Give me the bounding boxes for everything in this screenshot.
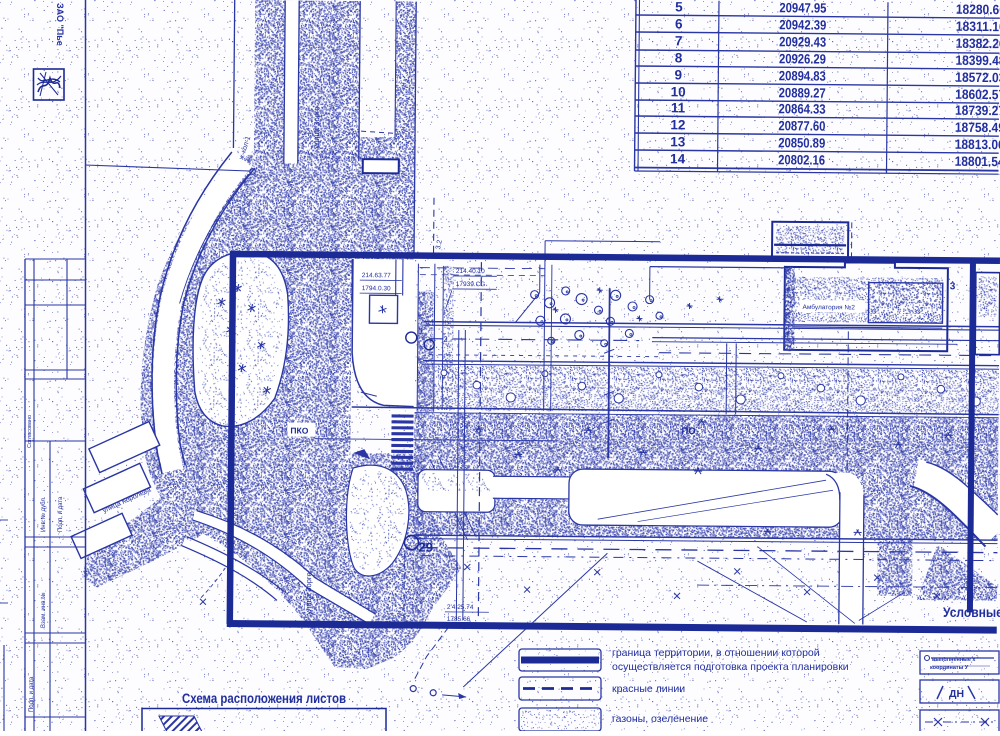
svg-text:20889.27: 20889.27 <box>779 85 826 100</box>
svg-text:Подп. и дата: Подп. и дата <box>29 676 35 712</box>
svg-text:1: 1 <box>419 327 424 336</box>
svg-text:3: 3 <box>950 281 956 292</box>
svg-text:7: 7 <box>675 33 683 48</box>
svg-text:214.63.77: 214.63.77 <box>362 272 391 279</box>
svg-text:Условные обозначения: Условные обозначения <box>943 605 1000 620</box>
svg-text:20894.83: 20894.83 <box>779 68 827 83</box>
svg-text:20947.95: 20947.95 <box>779 0 827 15</box>
svg-text:улица Зорге: улица Зорге <box>304 572 313 614</box>
svg-text:газоны, озеленение: газоны, озеленение <box>612 713 708 725</box>
svg-text:20802.16: 20802.16 <box>778 152 826 167</box>
svg-text:Инв.№ дубл.: Инв.№ дубл. <box>40 496 47 532</box>
svg-text:18382.26: 18382.26 <box>956 36 1000 51</box>
svg-text:20850.89: 20850.89 <box>778 135 825 150</box>
svg-text:18602.57: 18602.57 <box>955 87 1000 102</box>
svg-text:6: 6 <box>675 16 683 31</box>
svg-text:18813.06: 18813.06 <box>955 137 1000 152</box>
svg-text:2: 2 <box>443 335 448 344</box>
svg-text:18311.16: 18311.16 <box>956 19 1000 34</box>
svg-text:граница территории, в отношени: граница территории, в отношении которой <box>612 647 820 659</box>
svg-text:18399.48: 18399.48 <box>955 53 1000 68</box>
svg-text:Схема расположения листов: Схема расположения листов <box>182 691 346 706</box>
svg-text:29: 29 <box>418 540 433 555</box>
svg-text:10: 10 <box>671 84 686 99</box>
svg-text:9: 9 <box>675 67 683 82</box>
svg-text:18572.03: 18572.03 <box>955 70 1000 85</box>
svg-text:Подп. и дата: Подп. и дата <box>58 496 64 532</box>
svg-text:осуществляется подготовка про: осуществляется подготовка проекта планир… <box>612 661 849 673</box>
svg-text:18739.27: 18739.27 <box>955 103 1000 118</box>
svg-text:1794.0.30: 1794.0.30 <box>362 285 391 292</box>
svg-text:5: 5 <box>675 0 683 14</box>
svg-text:20929.43: 20929.43 <box>779 34 827 49</box>
svg-text:12: 12 <box>670 117 685 132</box>
svg-text:20877.60: 20877.60 <box>778 118 825 133</box>
svg-text:ПКО: ПКО <box>290 426 308 436</box>
svg-text:Согласовано: Согласовано <box>27 415 33 448</box>
svg-text:8: 8 <box>675 50 683 65</box>
svg-text:Амбулатория №2: Амбулатория №2 <box>803 303 856 311</box>
svg-text:11: 11 <box>671 100 686 115</box>
svg-text:18758.49: 18758.49 <box>955 120 1000 135</box>
svg-text:ДН: ДН <box>949 688 964 700</box>
svg-text:Взам. инв.№: Взам. инв.№ <box>40 592 47 628</box>
svg-text:улица Зорге: улица Зорге <box>312 106 321 148</box>
svg-text:20864.33: 20864.33 <box>778 101 826 116</box>
svg-text:13: 13 <box>670 134 686 149</box>
svg-text:20942.39: 20942.39 <box>779 17 826 32</box>
svg-text:18280.66: 18280.66 <box>956 2 1000 17</box>
svg-text:14: 14 <box>670 151 686 166</box>
svg-text:красные линии: красные линии <box>612 683 685 695</box>
svg-text:17939.CG: 17939.CG <box>456 281 486 288</box>
svg-text:18801.54: 18801.54 <box>955 154 1000 169</box>
svg-text:20926.29: 20926.29 <box>779 51 826 66</box>
svg-text:214.40.10: 214.40.10 <box>456 268 485 275</box>
svg-text:ЗАО "Пье: ЗАО "Пье <box>55 3 65 46</box>
svg-text:2'4.25.74: 2'4.25.74 <box>447 604 474 611</box>
svg-text:ПО: ПО <box>681 426 695 437</box>
